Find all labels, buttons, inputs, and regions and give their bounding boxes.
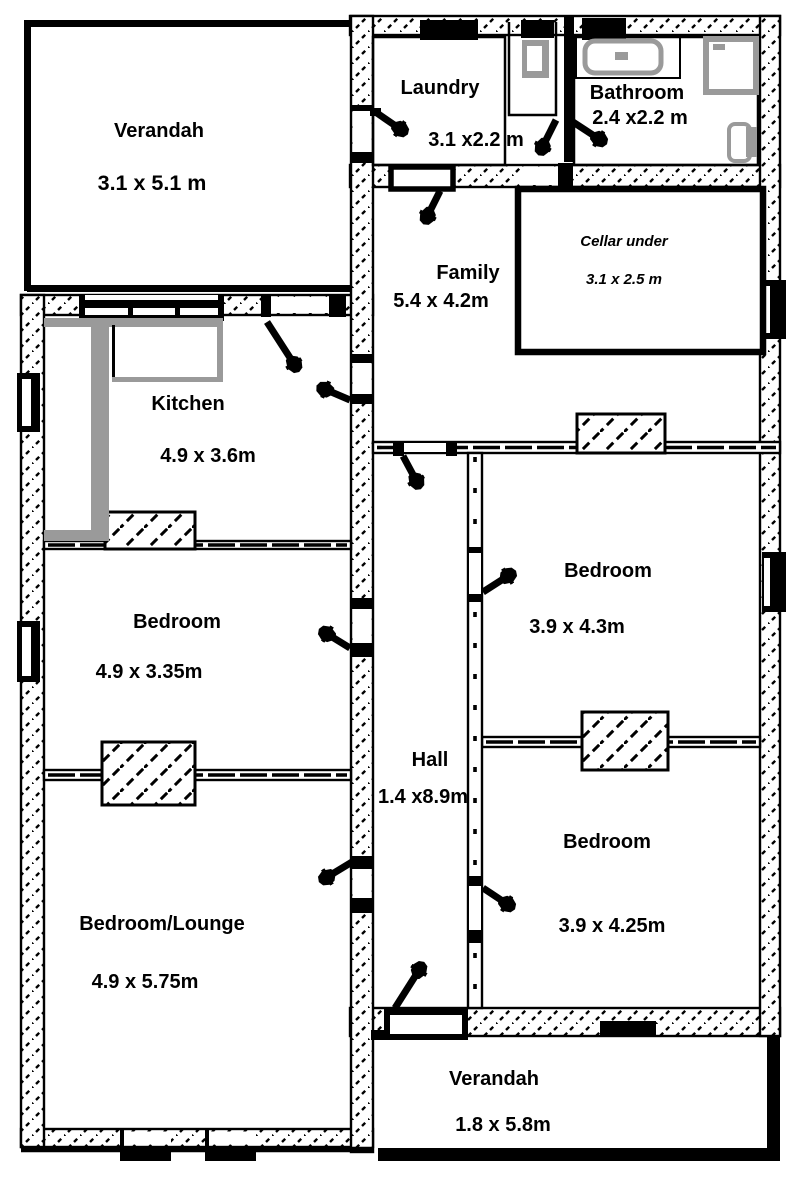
svg-text:Bedroom: Bedroom — [564, 560, 652, 582]
svg-text:Bedroom: Bedroom — [133, 611, 221, 633]
svg-text:3.1 x 5.1 m: 3.1 x 5.1 m — [98, 171, 207, 195]
svg-text:Kitchen: Kitchen — [151, 393, 224, 415]
svg-text:5.4 x 4.2m: 5.4 x 4.2m — [393, 290, 489, 312]
svg-text:2.4 x2.2 m: 2.4 x2.2 m — [592, 107, 688, 129]
svg-text:4.9 x 5.75m: 4.9 x 5.75m — [92, 971, 199, 993]
svg-text:1.4 x8.9m: 1.4 x8.9m — [378, 786, 468, 808]
svg-text:Laundry: Laundry — [401, 77, 481, 99]
svg-text:Bathroom: Bathroom — [590, 82, 684, 104]
svg-text:Bedroom/Lounge: Bedroom/Lounge — [79, 913, 245, 935]
svg-text:Hall: Hall — [412, 749, 449, 771]
svg-text:3.1 x2.2 m: 3.1 x2.2 m — [428, 129, 524, 151]
svg-text:3.9 x 4.25m: 3.9 x 4.25m — [559, 915, 666, 937]
svg-text:Verandah: Verandah — [449, 1068, 539, 1090]
svg-text:Verandah: Verandah — [114, 120, 204, 142]
svg-text:Family: Family — [436, 262, 500, 284]
svg-text:Cellar under: Cellar under — [580, 233, 669, 250]
svg-text:3.9 x 4.3m: 3.9 x 4.3m — [529, 616, 625, 638]
svg-text:4.9 x 3.35m: 4.9 x 3.35m — [96, 661, 203, 683]
svg-text:Bedroom: Bedroom — [563, 831, 651, 853]
svg-text:4.9 x 3.6m: 4.9 x 3.6m — [160, 445, 256, 467]
svg-text:3.1 x 2.5 m: 3.1 x 2.5 m — [586, 271, 662, 288]
svg-text:1.8 x 5.8m: 1.8 x 5.8m — [455, 1114, 551, 1136]
